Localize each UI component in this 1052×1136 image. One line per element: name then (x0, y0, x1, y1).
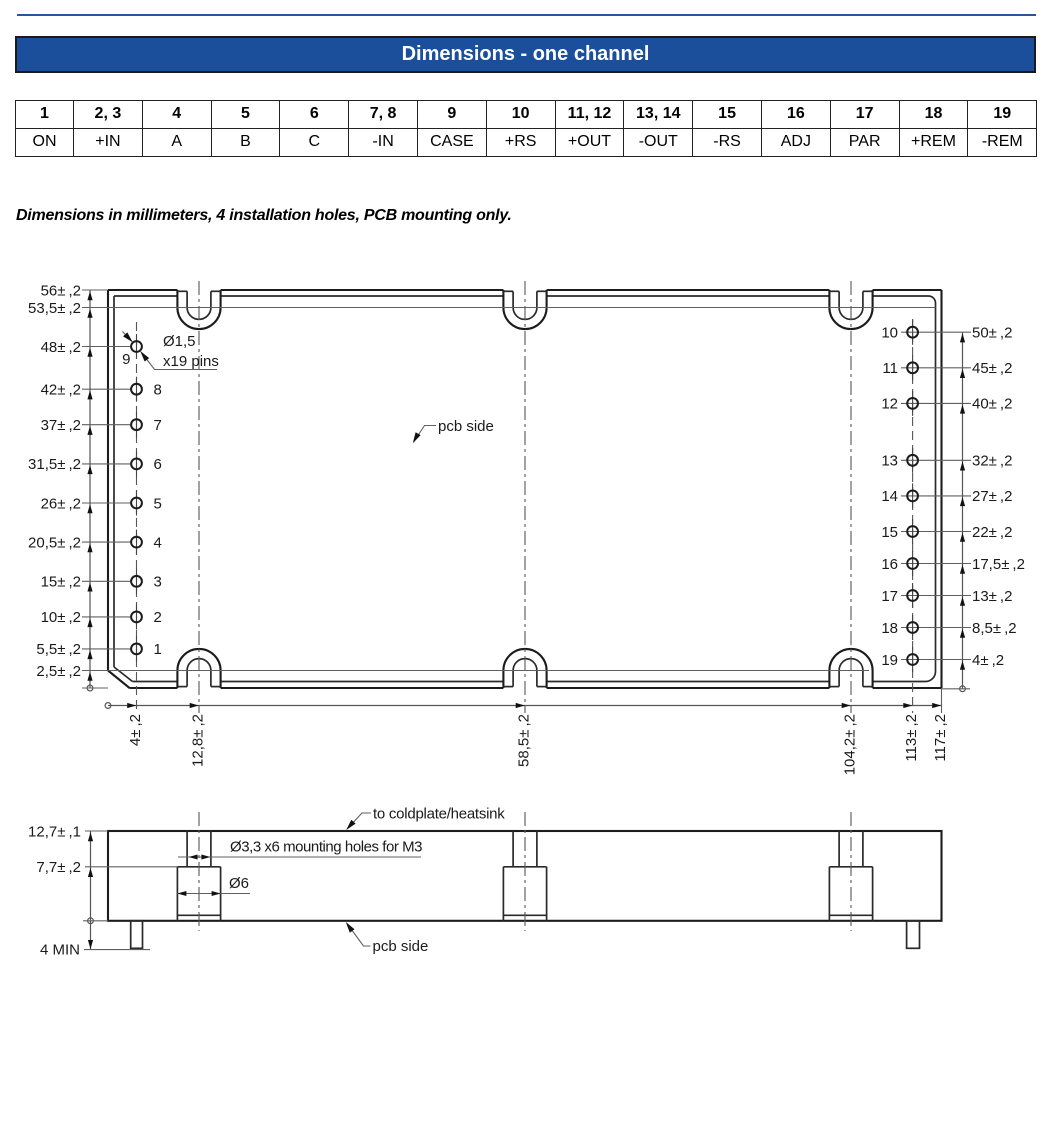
svg-text:17: 17 (881, 588, 898, 605)
svg-text:pcb side: pcb side (438, 418, 494, 435)
svg-text:15: 15 (881, 524, 898, 541)
svg-text:12,8± ,2: 12,8± ,2 (190, 714, 207, 767)
svg-text:48± ,2: 48± ,2 (41, 339, 81, 356)
svg-text:7,7± ,2: 7,7± ,2 (36, 859, 81, 876)
svg-text:7: 7 (154, 417, 162, 434)
svg-text:10± ,2: 10± ,2 (41, 609, 81, 626)
svg-text:4± ,2: 4± ,2 (127, 714, 144, 746)
svg-text:42± ,2: 42± ,2 (41, 382, 81, 399)
svg-text:10: 10 (881, 325, 898, 342)
svg-text:45± ,2: 45± ,2 (972, 360, 1012, 377)
svg-text:11: 11 (882, 360, 898, 377)
svg-text:37± ,2: 37± ,2 (41, 417, 81, 434)
svg-text:31,5± ,2: 31,5± ,2 (28, 456, 81, 473)
svg-text:12,7± ,1: 12,7± ,1 (28, 823, 81, 840)
svg-text:18: 18 (881, 620, 898, 637)
svg-text:Ø3,3 x6 mounting holes for M3: Ø3,3 x6 mounting holes for M3 (230, 839, 422, 856)
svg-text:20,5± ,2: 20,5± ,2 (28, 534, 81, 551)
svg-text:8: 8 (154, 382, 162, 399)
svg-text:4 MIN: 4 MIN (40, 942, 80, 959)
svg-text:x19 pins: x19 pins (163, 353, 219, 370)
svg-text:22± ,2: 22± ,2 (972, 524, 1012, 541)
svg-text:pcb side: pcb side (373, 938, 429, 955)
svg-text:6: 6 (154, 456, 162, 473)
svg-text:3: 3 (154, 574, 162, 591)
svg-text:50± ,2: 50± ,2 (972, 325, 1012, 342)
svg-text:113± ,2: 113± ,2 (903, 714, 920, 762)
svg-text:to coldplate/heatsink: to coldplate/heatsink (373, 806, 505, 823)
svg-text:32± ,2: 32± ,2 (972, 453, 1012, 470)
svg-text:9: 9 (122, 351, 130, 368)
svg-text:13± ,2: 13± ,2 (972, 588, 1012, 605)
svg-text:Ø6: Ø6 (229, 875, 249, 892)
svg-text:2,5± ,2: 2,5± ,2 (36, 663, 81, 680)
svg-text:13: 13 (881, 453, 898, 470)
svg-text:26± ,2: 26± ,2 (41, 495, 81, 512)
svg-text:58,5± ,2: 58,5± ,2 (516, 714, 533, 767)
svg-text:1: 1 (154, 641, 162, 658)
svg-text:2: 2 (154, 609, 162, 626)
svg-text:4± ,2: 4± ,2 (972, 652, 1004, 669)
svg-text:19: 19 (881, 652, 898, 669)
svg-text:56± ,2: 56± ,2 (41, 282, 81, 299)
svg-text:53,5± ,2: 53,5± ,2 (28, 300, 81, 317)
svg-text:104,2± ,2: 104,2± ,2 (842, 714, 859, 775)
svg-text:5: 5 (154, 495, 162, 512)
svg-text:Ø1,5: Ø1,5 (163, 333, 196, 350)
svg-text:14: 14 (881, 488, 898, 505)
svg-text:4: 4 (154, 534, 162, 551)
svg-text:40± ,2: 40± ,2 (972, 396, 1012, 413)
svg-text:5,5± ,2: 5,5± ,2 (36, 641, 81, 658)
svg-text:16: 16 (881, 556, 898, 573)
svg-text:12: 12 (881, 396, 898, 413)
svg-text:117± ,2: 117± ,2 (932, 714, 949, 762)
svg-text:8,5± ,2: 8,5± ,2 (972, 620, 1017, 637)
svg-text:17,5± ,2: 17,5± ,2 (972, 556, 1025, 573)
svg-text:27± ,2: 27± ,2 (972, 488, 1012, 505)
svg-text:15± ,2: 15± ,2 (41, 574, 81, 591)
